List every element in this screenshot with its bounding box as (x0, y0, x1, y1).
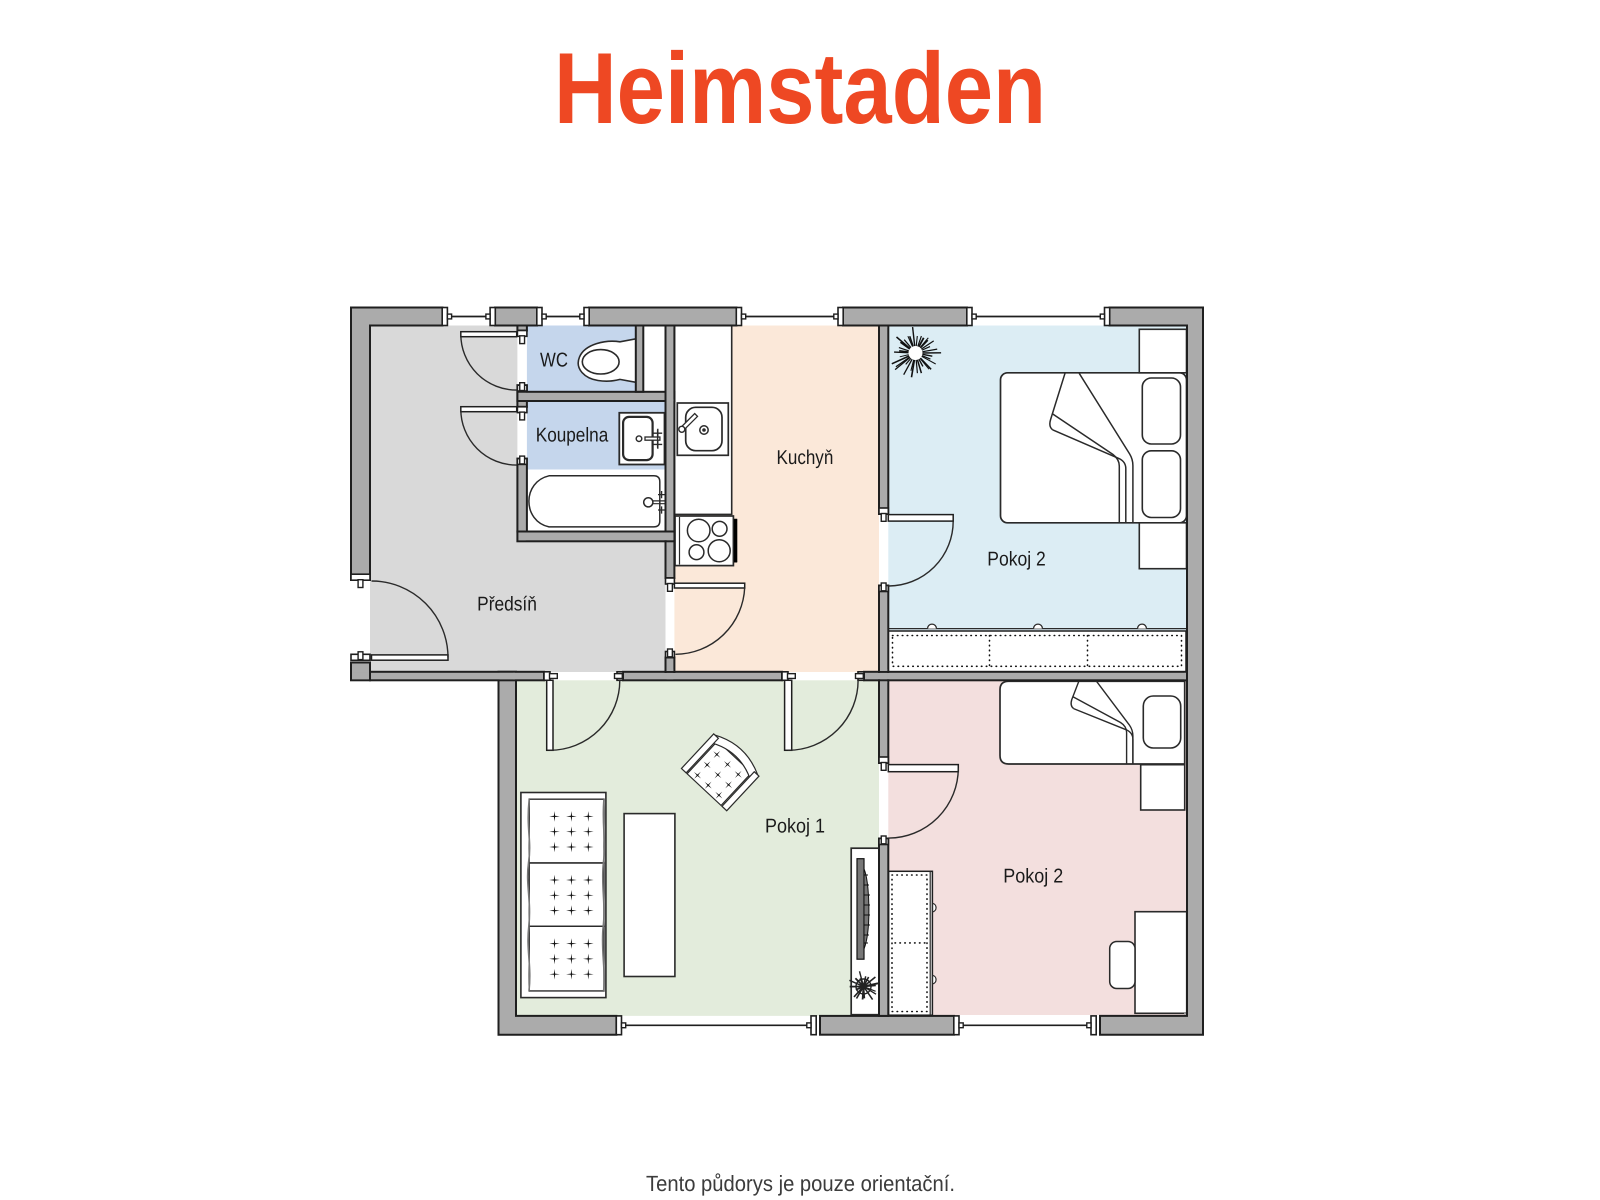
svg-text:Koupelna: Koupelna (536, 425, 609, 447)
svg-text:Heimstaden: Heimstaden (554, 33, 1046, 145)
svg-text:Předsíň: Předsíň (477, 594, 537, 616)
svg-text:Pokoj 2: Pokoj 2 (987, 548, 1046, 570)
svg-text:Pokoj 1: Pokoj 1 (765, 815, 825, 837)
svg-text:Kuchyň: Kuchyň (777, 447, 834, 469)
svg-text:Tento půdorys je pouze orienta: Tento půdorys je pouze orientační. (646, 1171, 955, 1196)
svg-text:Pokoj 2: Pokoj 2 (1003, 865, 1063, 887)
svg-text:WC: WC (540, 350, 568, 372)
